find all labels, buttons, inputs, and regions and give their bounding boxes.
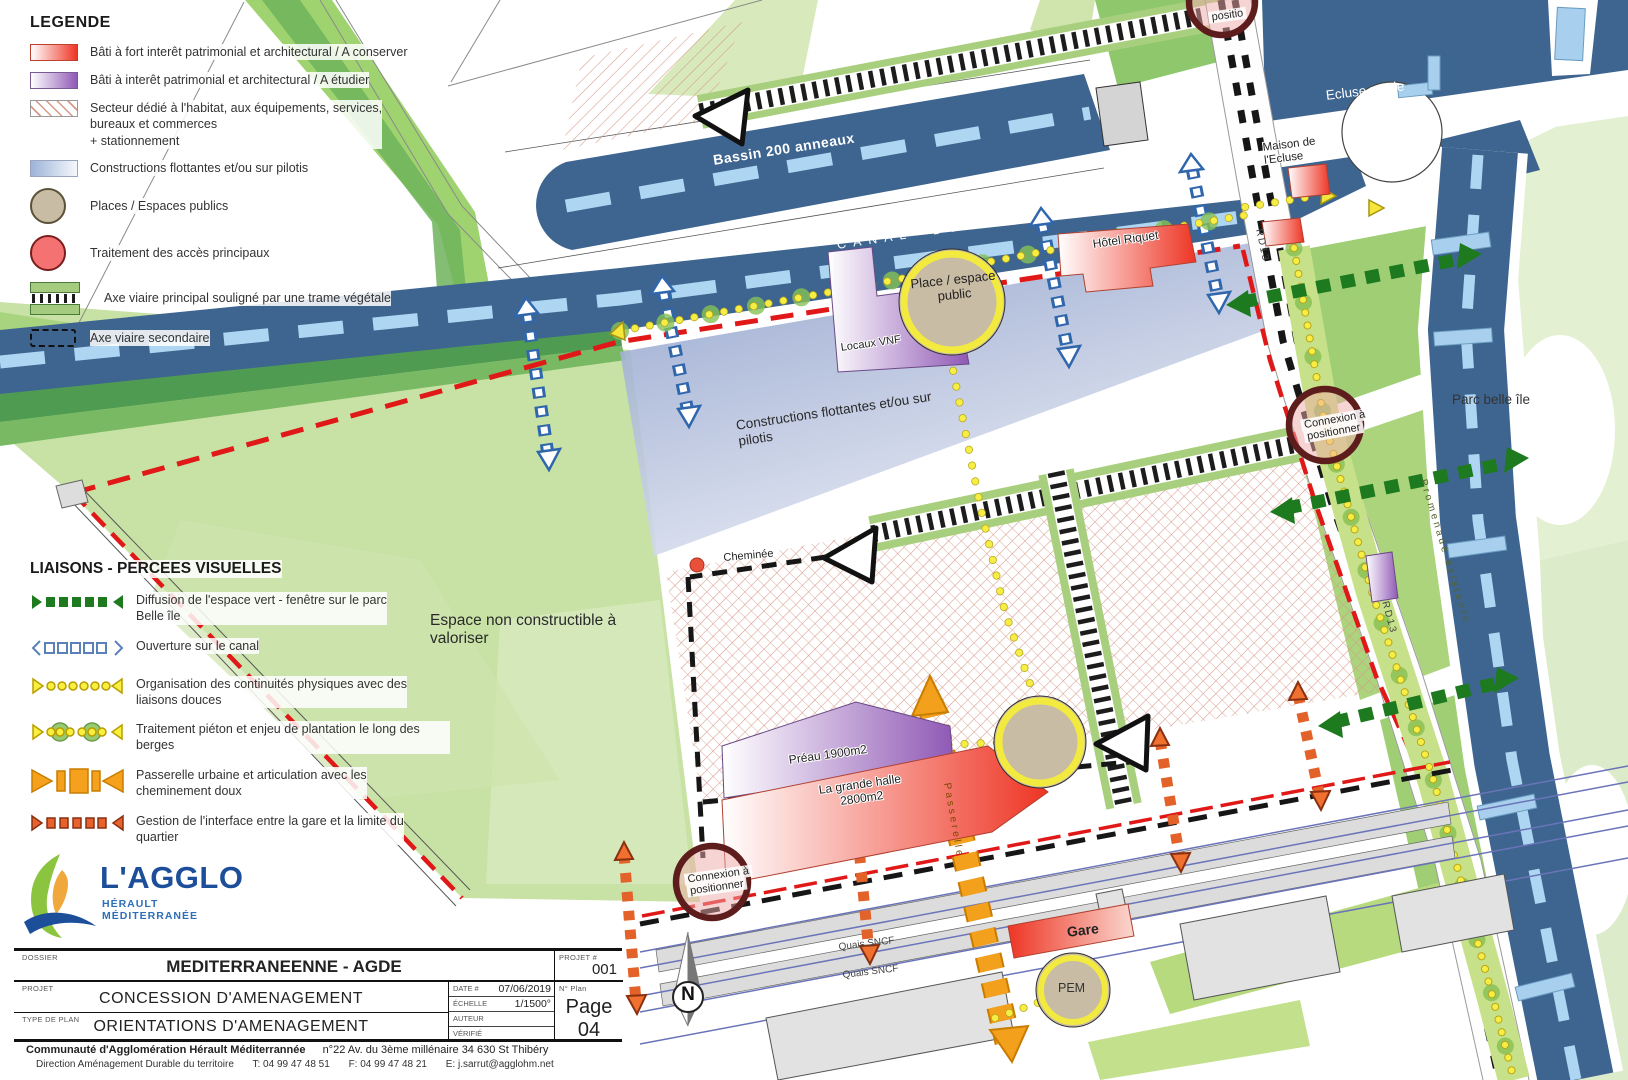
blue-squares-arrow-icon (30, 638, 130, 663)
dossier-label: DOSSIER (22, 953, 58, 962)
auteur-label: AUTEUR (453, 1014, 484, 1023)
legend-item: Bâti à interêt patrimonial et architectu… (30, 72, 460, 89)
liaisons-panel: LIAISONS - PERCEES VISUELLES Diffusion d… (30, 560, 450, 858)
label-north: N (676, 984, 700, 1006)
liaison-item: Ouverture sur le canal (30, 638, 450, 663)
legend-panel: LEGENDE Bâti à fort interêt patrimonial … (30, 14, 460, 358)
projet-num-value: 001 (592, 961, 617, 978)
titleblock-projet-row: PROJET CONCESSION D'AMENAGEMENT (14, 982, 448, 1012)
blue-gradient-swatch-icon (30, 160, 80, 177)
footer-dept: Direction Aménagement Durable du territo… (36, 1059, 234, 1070)
legend-item: Traitement des accès principaux (30, 235, 460, 271)
footer: Communauté d'Agglomération Hérault Médit… (26, 1044, 606, 1070)
legend-item: Bâti à fort interêt patrimonial et archi… (30, 44, 460, 61)
footer-address: n°22 Av. du 3ème millénaire 34 630 St Th… (323, 1044, 549, 1056)
titleblock-type-row: TYPE DE PLAN ORIENTATIONS D'AMENAGEMENT (14, 1012, 448, 1040)
red-gradient-swatch-icon (30, 44, 80, 61)
date-value: 07/06/2019 (498, 983, 551, 995)
liaison-item: Traitement piéton et enjeu de plantation… (30, 721, 450, 754)
projet-label: PROJET (22, 984, 53, 993)
echelle-label: ÉCHELLE (453, 999, 487, 1008)
titleblock-dossier-row: DOSSIER MEDITERRANEENNE - AGDE (14, 951, 554, 982)
legend-item: Secteur dédié à l'habitat, aux équipemen… (30, 100, 460, 149)
date-label: DATE # (453, 984, 479, 993)
legend-item: Places / Espaces publics (30, 188, 460, 224)
agglo-logo: L'AGGLO HÉRAULT MÉDITERRANÉE (22, 848, 252, 944)
page-number: Page 04 (555, 996, 623, 1042)
footer-email: E: j.sarrut@agglohm.net (446, 1059, 554, 1070)
purple-gradient-swatch-icon (30, 72, 80, 89)
ladder-swatch-icon (30, 282, 80, 315)
echelle-value: 1/1500° (515, 998, 551, 1010)
liaison-item: Gestion de l'interface entre la gare et … (30, 813, 450, 846)
building-maison-ecluse (1288, 164, 1330, 198)
liaisons-title: LIAISONS - PERCEES VISUELLES (30, 560, 282, 578)
dashed-rect-swatch-icon (30, 329, 80, 347)
nplan-label: N° Plan (559, 984, 587, 993)
projet-value: CONCESSION D'AMENAGEMENT (14, 990, 448, 1008)
legend-title: LEGENDE (30, 14, 460, 32)
yellow-trees-arrow-icon (30, 721, 130, 748)
liaison-item: Passerelle urbaine et articulation avec … (30, 767, 450, 800)
hatched-swatch-icon (30, 100, 80, 117)
orange-squares-arrow-icon (30, 813, 130, 838)
pink-circle-swatch-icon (30, 235, 80, 271)
label-espace-non-constructible: Espace non constructible à valoriser (430, 612, 616, 648)
footer-org: Communauté d'Agglomération Hérault Médit… (26, 1044, 306, 1056)
liaison-item: Diffusion de l'espace vert - fenêtre sur… (30, 592, 450, 625)
plan-sheet: Bassin 200 anneaux CANAL DU MIDI Ecluse … (0, 0, 1628, 1080)
titleblock-meta: DATE # 07/06/2019 ÉCHELLE 1/1500° AUTEUR… (448, 982, 555, 1039)
titleblock-plan-num: N° Plan Page 04 (554, 982, 623, 1039)
yellow-dots-arrow-icon (30, 676, 130, 701)
cheminee-dot (690, 558, 704, 572)
liaison-item: Organisation des continuités physiques a… (30, 676, 450, 709)
logo-subtitle: HÉRAULT MÉDITERRANÉE (102, 898, 252, 922)
logo-name: L'AGGLO (100, 860, 243, 896)
type-plan-label: TYPE DE PLAN (22, 1015, 79, 1024)
title-block: DOSSIER MEDITERRANEENNE - AGDE PROJET # … (14, 948, 622, 1042)
titleblock-projet-num: PROJET # 001 (554, 951, 623, 982)
green-dashed-arrow-icon (30, 592, 130, 617)
legend-item: Constructions flottantes et/ou sur pilot… (30, 160, 460, 177)
tan-circle-swatch-icon (30, 188, 80, 224)
legend-item: Axe viaire principal souligné par une tr… (30, 282, 460, 315)
footer-tel: T: 04 99 47 48 51 (253, 1059, 330, 1070)
verifie-label: VÉRIFIÉ (453, 1029, 482, 1038)
legend-item: Axe viaire secondaire (30, 329, 460, 347)
dossier-value: MEDITERRANEENNE - AGDE (14, 957, 554, 977)
footer-fax: F: 04 99 47 48 21 (349, 1059, 427, 1070)
agglo-logo-icon (22, 848, 100, 944)
label-parc-belle-ile: Parc belle île (1452, 392, 1530, 408)
orange-bridge-arrow-icon (30, 767, 130, 800)
label-pem: PEM (1058, 981, 1085, 995)
